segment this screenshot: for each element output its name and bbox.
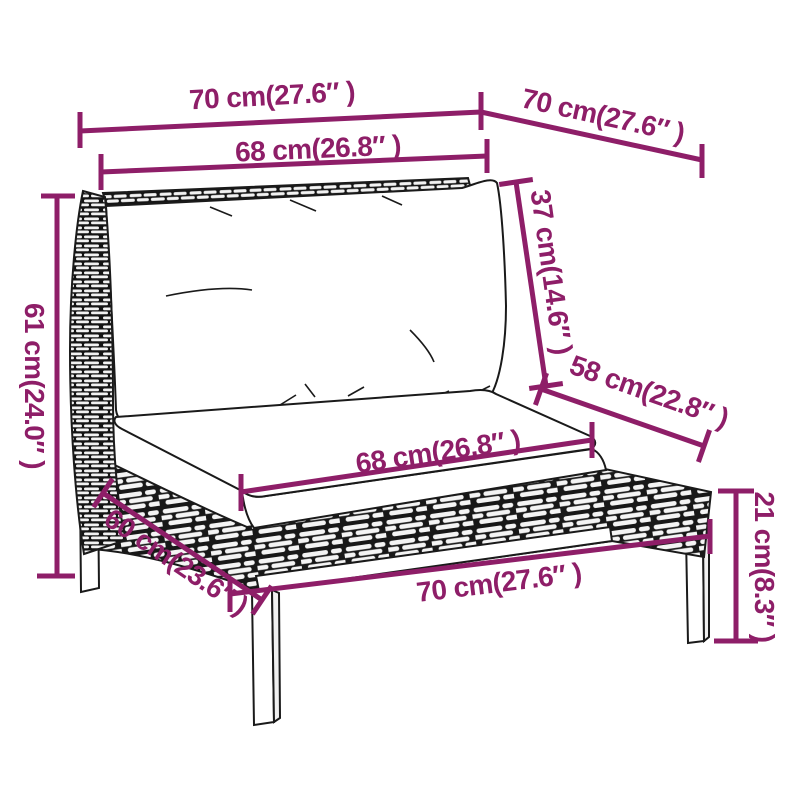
dimension-diagram: 70 cm(27.6″ ) 70 cm(27.6″ ) 68 cm(26.8″ … [0,0,800,800]
dim-label-overall-height: 61 cm(24.0″ ) [18,303,50,469]
dim-label-seat-height: 21 cm(8.3″ ) [748,492,780,643]
